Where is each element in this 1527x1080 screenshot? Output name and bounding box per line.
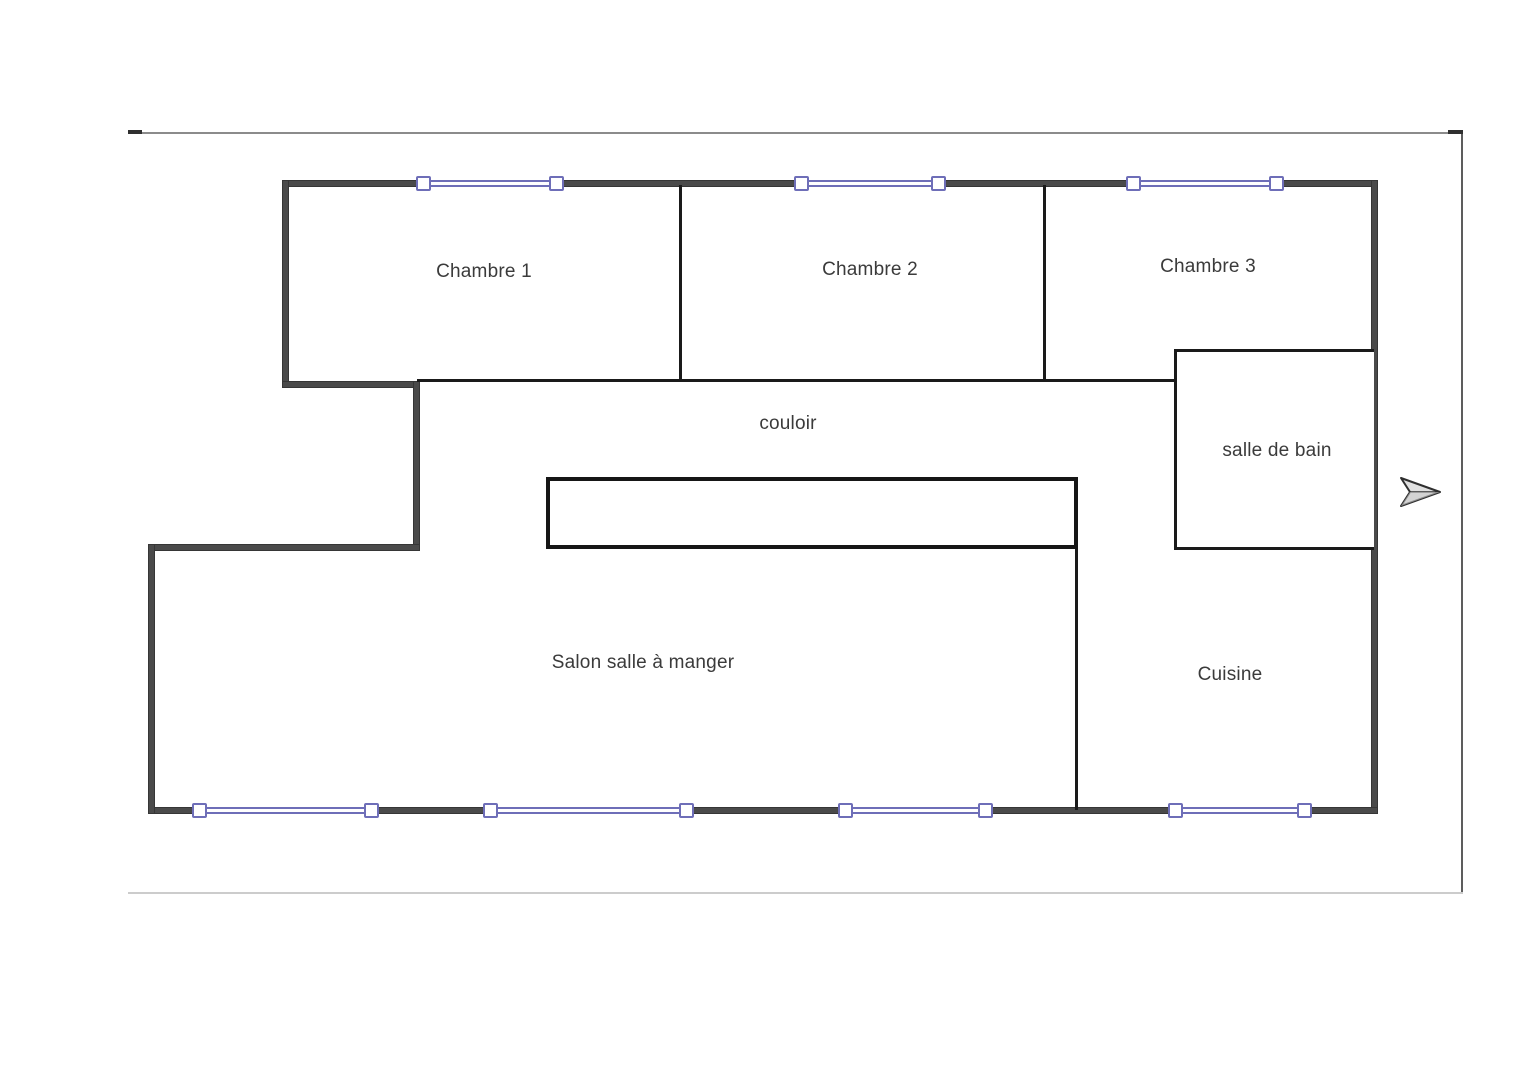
window-glass-line <box>802 180 938 182</box>
window-endpoint <box>483 803 498 818</box>
window-glass-line <box>200 807 371 809</box>
window-endpoint <box>679 803 694 818</box>
window-cuisine <box>1168 803 1312 818</box>
room-label-couloir: couloir <box>759 413 816 435</box>
window-endpoint <box>1168 803 1183 818</box>
window-glass-line <box>1134 185 1276 187</box>
window-glass-line <box>1176 807 1304 809</box>
wall-couloir-top <box>417 379 1177 382</box>
wall-chambre1-left <box>282 180 289 388</box>
page-border-bottom <box>128 892 1463 894</box>
window-glass-line <box>802 185 938 187</box>
window-salon-2 <box>483 803 694 818</box>
window-glass-line <box>200 812 371 814</box>
window-glass-line <box>1176 812 1304 814</box>
wall-salon-cuisine-divider <box>1075 548 1078 810</box>
window-endpoint <box>364 803 379 818</box>
wall-step-vertical <box>413 381 420 551</box>
window-glass-line <box>424 185 556 187</box>
window-endpoint <box>1269 176 1284 191</box>
window-endpoint <box>192 803 207 818</box>
window-glass-line <box>424 180 556 182</box>
window-endpoint <box>978 803 993 818</box>
wall-chambre1-chambre2-divider <box>679 185 682 381</box>
room-label-chambre-2: Chambre 2 <box>822 259 918 281</box>
window-chambre1 <box>416 176 564 191</box>
room-label-salle-de-bain: salle de bain <box>1222 440 1331 462</box>
window-glass-line <box>1134 180 1276 182</box>
window-endpoint <box>1126 176 1141 191</box>
room-label-chambre-3: Chambre 3 <box>1160 256 1256 278</box>
page-border-tick-left <box>128 130 142 134</box>
wall-salon-left <box>148 544 155 814</box>
wall-chambre2-chambre3-divider <box>1043 185 1046 381</box>
room-label-cuisine: Cuisine <box>1198 664 1263 686</box>
wall-salon-top-left <box>148 544 420 551</box>
page-border-right <box>1461 132 1463 894</box>
window-glass-line <box>846 807 985 809</box>
window-glass-line <box>491 812 686 814</box>
window-endpoint <box>931 176 946 191</box>
room-label-salon: Salon salle à manger <box>552 652 735 674</box>
window-chambre2 <box>794 176 946 191</box>
floor-plan-canvas: Chambre 1 Chambre 2 Chambre 3 couloir sa… <box>0 0 1527 1080</box>
window-endpoint <box>794 176 809 191</box>
room-label-chambre-1: Chambre 1 <box>436 261 532 283</box>
page-border-top <box>128 132 1463 134</box>
wall-step-horizontal <box>282 381 420 388</box>
window-chambre3 <box>1126 176 1284 191</box>
window-salon-1 <box>192 803 379 818</box>
page-border-tick-right <box>1448 130 1463 134</box>
direction-arrow-icon <box>1399 474 1443 510</box>
window-glass-line <box>491 807 686 809</box>
window-glass-line <box>846 812 985 814</box>
window-endpoint <box>1297 803 1312 818</box>
window-endpoint <box>549 176 564 191</box>
window-endpoint <box>838 803 853 818</box>
window-salon-3 <box>838 803 993 818</box>
window-endpoint <box>416 176 431 191</box>
couloir-partition-rectangle <box>546 477 1078 549</box>
